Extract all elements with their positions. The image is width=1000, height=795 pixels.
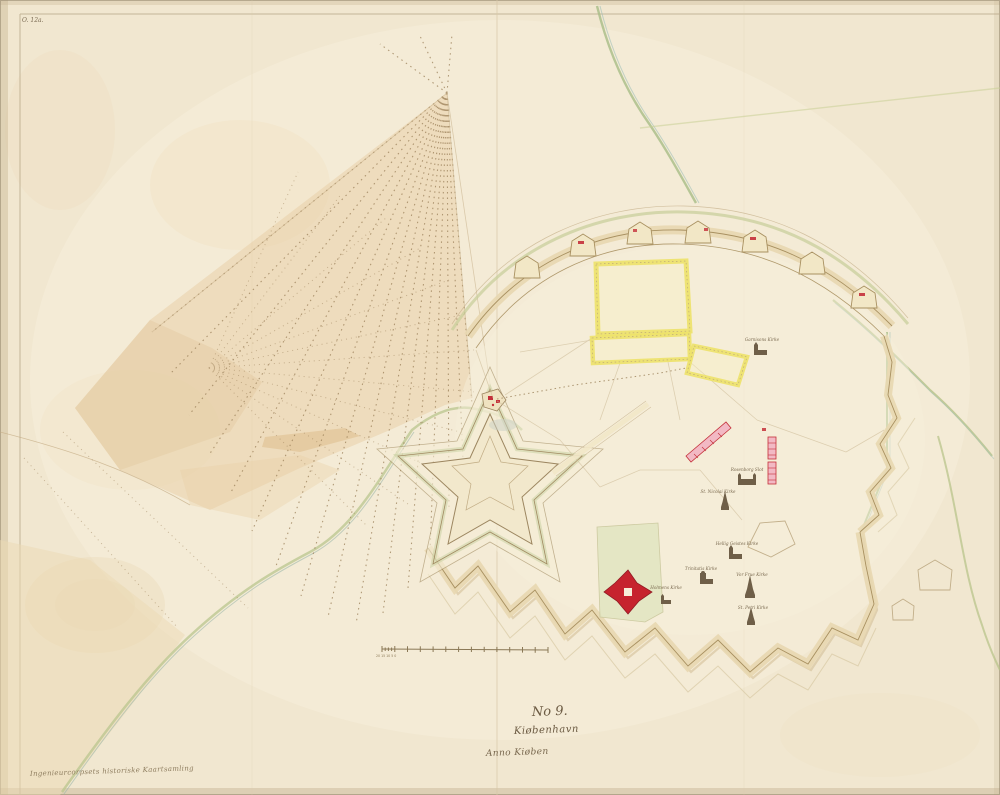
church-label: Trinitatis Kirke [685,566,718,571]
fortification-map-svg: Garnisons Kirke Rosenborg Slot St. Nicol… [0,0,1000,795]
church-label: Hellig Geistes Kirke [715,541,759,546]
scale-numbers: 20 15 10 5 0 [376,654,396,658]
church-label: St. Petri Kirke [738,605,769,610]
map-number: No 9. [531,704,568,720]
map-sheet: Garnisons Kirke Rosenborg Slot St. Nicol… [0,0,1000,795]
yellow-parcel-b [592,334,690,363]
church-label: Garnisons Kirke [745,337,780,342]
church-label: Vor Frue Kirke [736,572,768,577]
pond [489,419,517,431]
castle-island [597,523,663,622]
church-label: Holmens Kirke [649,585,682,590]
map-title: Kiøbenhavn [513,724,579,737]
archive-mark: O. 12a. [22,17,44,24]
yellow-parcel-a [596,261,690,334]
church-label: St. Nicolai Kirke [700,489,736,494]
church-label: Rosenborg Slot [730,467,764,472]
